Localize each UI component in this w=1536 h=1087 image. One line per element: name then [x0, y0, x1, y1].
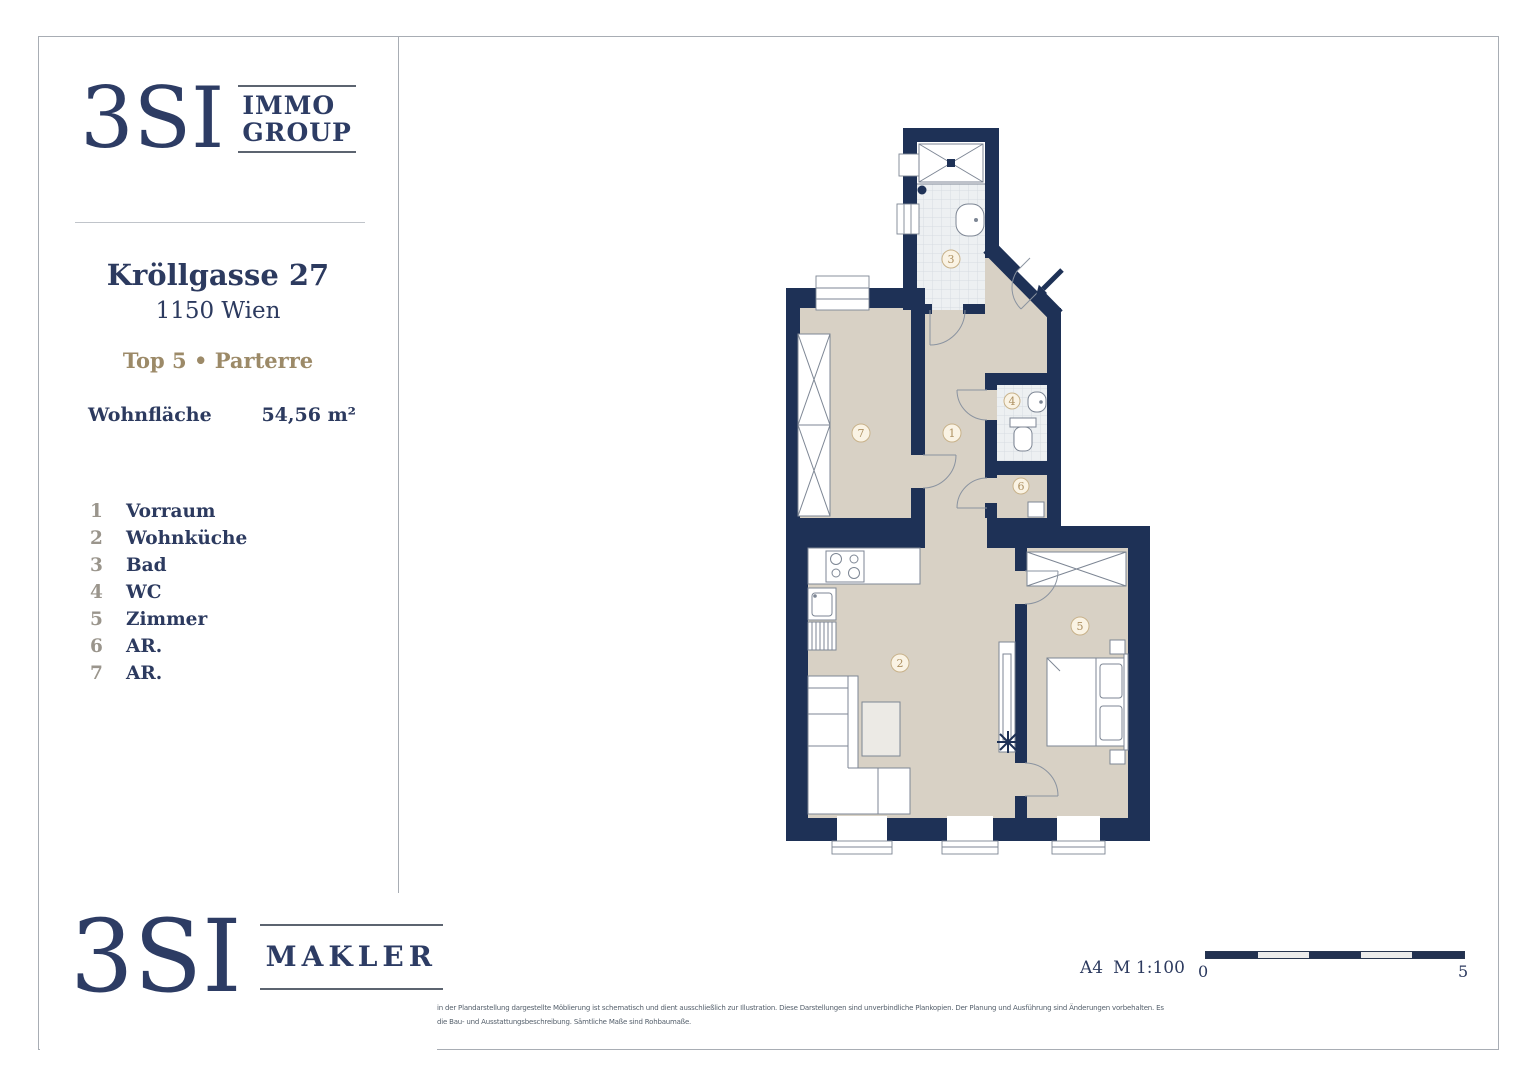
legend-label: Zimmer: [126, 609, 207, 630]
room-legend: 1Vorraum 2Wohnküche 3Bad 4WC 5Zimmer 6AR…: [90, 498, 247, 687]
legend-number: 4: [90, 582, 120, 603]
toilet-icon: [1010, 418, 1036, 451]
room-number-bad: 3: [948, 253, 955, 266]
floor-plan: 1 2 3 4 5 6 7: [770, 118, 1170, 858]
room-number-wc: 4: [1009, 395, 1016, 408]
wardrobe-icon: [1027, 552, 1126, 586]
shower-icon: [917, 144, 985, 184]
legend-row: 3Bad: [90, 552, 247, 579]
closet-icon: [798, 334, 830, 516]
room-number-ar6: 6: [1018, 480, 1025, 493]
page: 3SI IMMO GROUP Kröllgasse 27 1150 Wien T…: [0, 0, 1536, 1087]
legend-number: 3: [90, 555, 120, 576]
area-label: Wohnfläche: [88, 404, 212, 426]
scale-ratio: M 1:100: [1113, 958, 1185, 978]
room-number-vorraum: 1: [949, 427, 956, 440]
room-number-zimmer: 5: [1077, 620, 1084, 633]
legend-row: 1Vorraum: [90, 498, 247, 525]
sheet-format: A4: [1080, 958, 1103, 978]
divider-rule: [75, 222, 365, 223]
street-address: Kröllgasse 27: [38, 258, 398, 292]
brand-name: 3SI: [70, 911, 242, 1003]
scale-bar-segment: [1309, 952, 1361, 958]
scale-end-label: 5: [1458, 962, 1468, 981]
boiler-icon: [1028, 502, 1044, 517]
scale-bar-segment: [1206, 952, 1258, 958]
legend-label: Bad: [126, 555, 167, 576]
scale-start-label: 0: [1198, 962, 1208, 981]
brand-name: 3SI: [80, 80, 224, 157]
legend-label: WC: [126, 582, 162, 603]
legend-label: Wohnküche: [126, 528, 247, 549]
unit-floor: Top 5 • Parterre: [38, 348, 398, 373]
disclaimer: in der Plandarstellung dargestellte Möbl…: [437, 1001, 1227, 1029]
scale-bar-segment: [1361, 952, 1413, 958]
disclaimer-line-2: die Bau- und Ausstattungsbeschreibung. S…: [437, 1015, 1227, 1029]
plant-icon: [997, 731, 1019, 753]
bed-icon: [1047, 640, 1128, 764]
brand-suffix-line2: GROUP: [242, 119, 352, 146]
legend-label: Vorraum: [126, 501, 216, 522]
legend-number: 1: [90, 501, 120, 522]
radiator-icon: [808, 622, 836, 650]
legend-number: 2: [90, 528, 120, 549]
legend-row: 6AR.: [90, 633, 247, 660]
disclaimer-line-1: in der Plandarstellung dargestellte Möbl…: [437, 1001, 1227, 1015]
footer-logo-box: 3SI MAKLER: [40, 893, 437, 1060]
legend-number: 6: [90, 636, 120, 657]
legend-row: 2Wohnküche: [90, 525, 247, 552]
scale-bar-segment: [1258, 952, 1310, 958]
scale-bar-segment: [1412, 952, 1464, 958]
bath-washbasin-icon: [956, 204, 984, 236]
kitchen-counter-icon: [808, 548, 920, 584]
brand-logo-bottom: 3SI MAKLER: [70, 911, 443, 1003]
scale-note: A4M 1:100: [1080, 958, 1185, 978]
scale-bar: [1205, 951, 1465, 959]
city: 1150 Wien: [38, 298, 398, 324]
legend-label: AR.: [126, 663, 162, 684]
legend-number: 5: [90, 609, 120, 630]
area-value: 54,56 m²: [261, 404, 356, 426]
brand-suffix-label: MAKLER: [266, 943, 437, 971]
kitchen-sink-icon: [808, 588, 836, 620]
brand-suffix: IMMO GROUP: [238, 85, 356, 153]
wc-washbasin-icon: [1028, 392, 1046, 412]
brand-logo-top: 3SI IMMO GROUP: [38, 80, 398, 157]
brand-suffix-line1: IMMO: [242, 92, 352, 119]
legend-label: AR.: [126, 636, 162, 657]
coffee-table-icon: [862, 702, 900, 756]
legend-row: 4WC: [90, 579, 247, 606]
room-number-wohnkueche: 2: [897, 657, 904, 670]
room-number-ar7: 7: [858, 427, 865, 440]
shower-valve-icon: [918, 186, 927, 195]
legend-row: 5Zimmer: [90, 606, 247, 633]
brand-suffix: MAKLER: [260, 924, 443, 990]
legend-row: 7AR.: [90, 660, 247, 687]
living-area-row: Wohnfläche 54,56 m²: [88, 404, 356, 426]
legend-number: 7: [90, 663, 120, 684]
